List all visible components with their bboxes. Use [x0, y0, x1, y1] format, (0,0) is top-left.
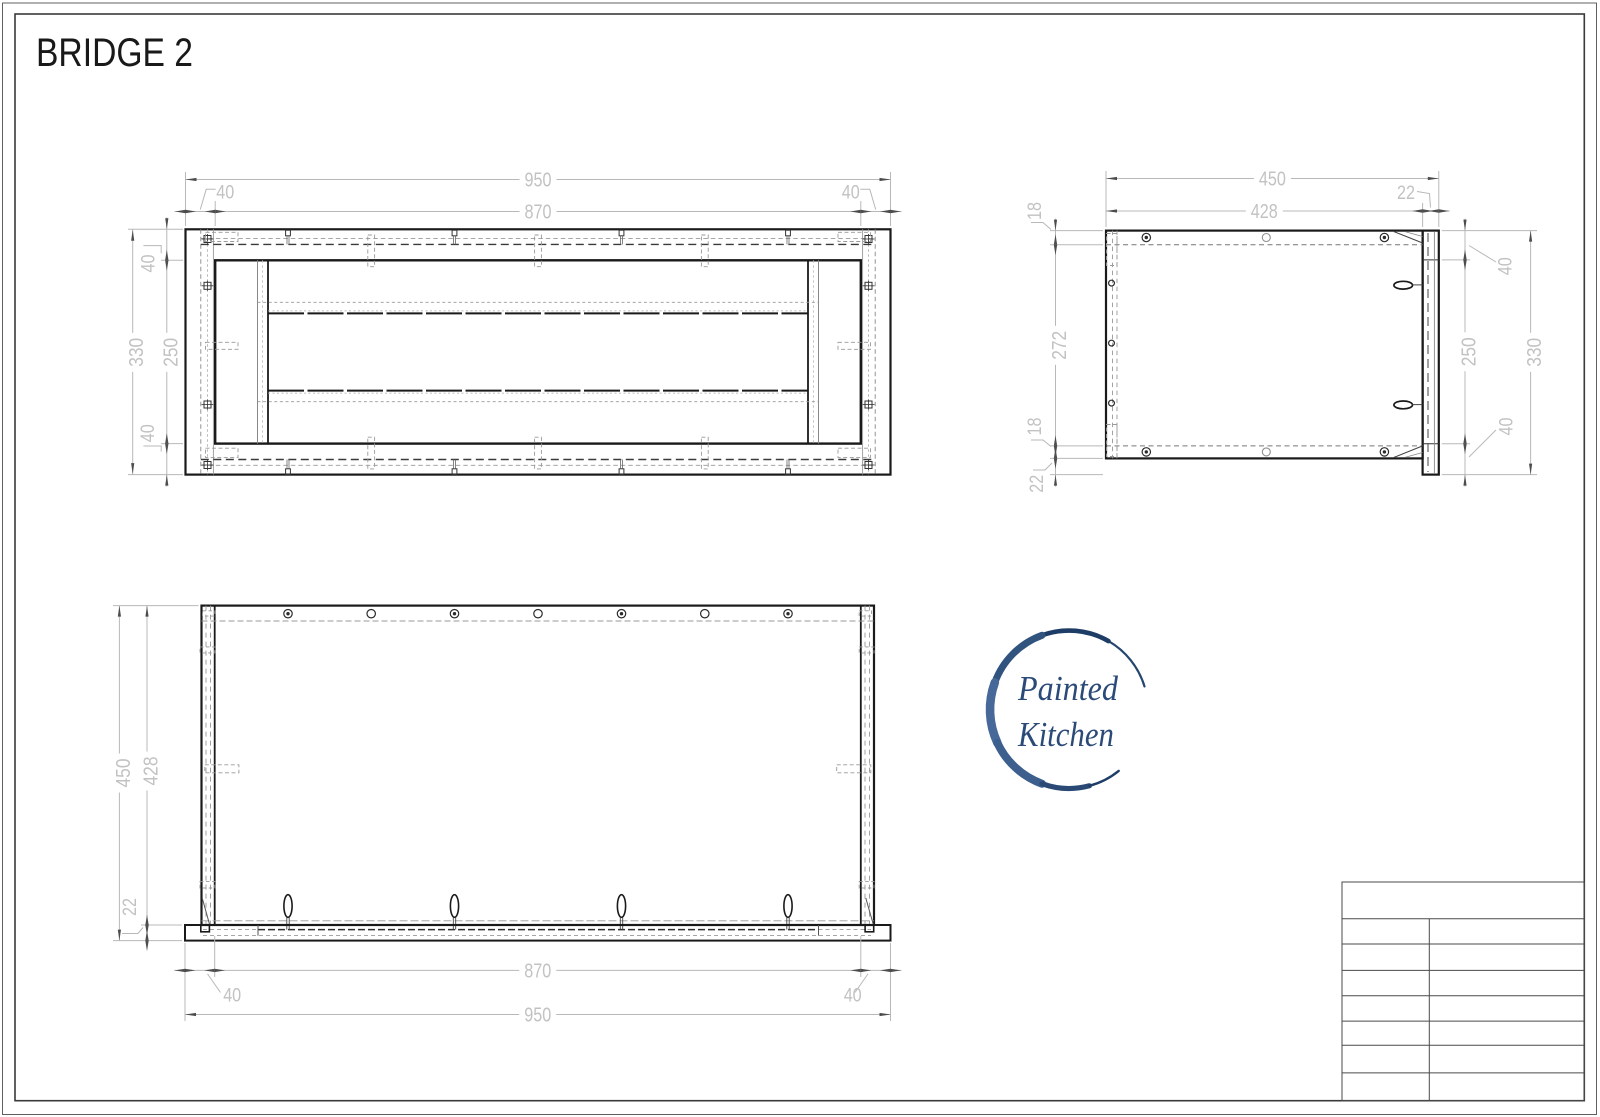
svg-text:40: 40	[1495, 417, 1517, 435]
svg-text:40: 40	[137, 424, 159, 442]
svg-text:250: 250	[160, 338, 182, 367]
svg-text:950: 950	[525, 170, 552, 192]
svg-text:272: 272	[1049, 331, 1071, 360]
svg-text:450: 450	[1259, 169, 1286, 191]
svg-text:250: 250	[1459, 337, 1481, 366]
svg-text:330: 330	[126, 338, 148, 367]
svg-text:40: 40	[844, 985, 862, 1007]
svg-text:870: 870	[524, 960, 551, 982]
svg-text:870: 870	[525, 202, 552, 224]
svg-text:450: 450	[113, 759, 135, 788]
svg-text:40: 40	[216, 182, 234, 204]
svg-text:40: 40	[138, 254, 160, 272]
svg-text:22: 22	[119, 898, 141, 916]
svg-text:428: 428	[141, 757, 163, 786]
svg-text:Kitchen: Kitchen	[1017, 715, 1114, 754]
svg-text:18: 18	[1024, 418, 1046, 436]
svg-text:40: 40	[842, 182, 860, 204]
svg-text:BRIDGE 2: BRIDGE 2	[36, 31, 193, 75]
svg-text:18: 18	[1024, 202, 1046, 220]
svg-text:40: 40	[1495, 257, 1517, 275]
svg-text:Painted: Painted	[1017, 669, 1118, 708]
svg-text:40: 40	[223, 985, 241, 1007]
svg-text:950: 950	[524, 1005, 551, 1027]
svg-text:22: 22	[1026, 475, 1048, 493]
svg-text:330: 330	[1524, 338, 1546, 367]
svg-text:428: 428	[1251, 201, 1278, 223]
svg-text:22: 22	[1397, 182, 1415, 204]
